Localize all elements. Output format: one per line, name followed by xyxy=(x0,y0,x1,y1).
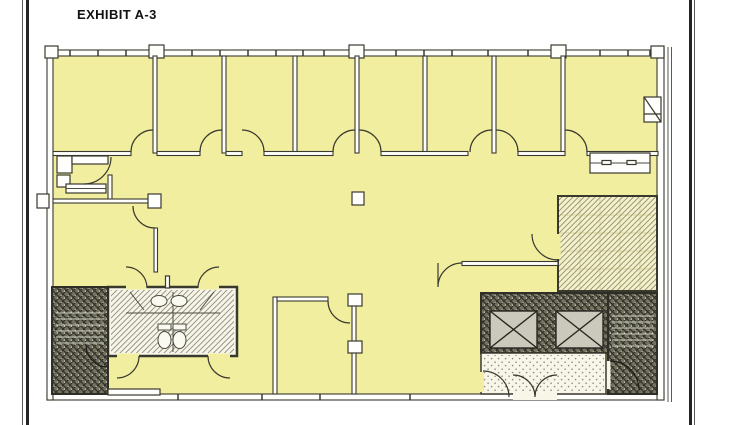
sink-fixture xyxy=(151,296,167,307)
office-partition xyxy=(293,56,297,153)
lobby-door-opening xyxy=(479,372,484,392)
corridor-wall xyxy=(264,152,333,156)
office-east-wall xyxy=(154,228,158,272)
office-partition xyxy=(492,56,496,153)
corridor-wall xyxy=(157,152,200,156)
shelf-unit xyxy=(72,156,108,164)
office-partition xyxy=(561,56,565,153)
storage-hatch xyxy=(559,197,656,290)
office-partition xyxy=(355,56,359,153)
counter-drawer xyxy=(627,161,636,165)
elevator-cab-1 xyxy=(490,311,537,348)
shelf-unit xyxy=(57,156,72,173)
storage-door-opening xyxy=(556,234,561,259)
corridor-wall xyxy=(53,152,131,156)
wall-end-column xyxy=(148,194,161,208)
restroom-door-opening xyxy=(198,285,219,290)
restroom-door-opening xyxy=(126,285,147,290)
document-page: EXHIBIT A-3 xyxy=(0,0,729,425)
stairwell-left-walls xyxy=(52,287,108,394)
toilet-bowl xyxy=(158,332,171,349)
elevator-core xyxy=(481,293,608,353)
office-north-wall xyxy=(277,297,328,301)
counter-drawer xyxy=(602,161,611,165)
corridor-wall xyxy=(381,152,468,156)
floor-plan xyxy=(0,0,729,425)
corridor-wall xyxy=(226,152,242,156)
freestanding-column xyxy=(352,192,364,205)
lobby-stipple xyxy=(483,355,604,392)
office-west-wall xyxy=(273,297,277,394)
column-marker xyxy=(45,46,58,58)
toilet-tank xyxy=(158,324,171,330)
office-north-wall xyxy=(53,199,149,203)
wall-column xyxy=(348,341,362,353)
lobby-vestibule xyxy=(479,353,606,400)
elevator-cab-2 xyxy=(556,311,603,348)
stairwell-right xyxy=(606,293,658,394)
column-marker xyxy=(651,46,664,58)
low-wall-segment xyxy=(108,389,160,395)
office-partition xyxy=(153,56,157,153)
toilet-tank xyxy=(173,324,186,330)
stairwell-right-walls xyxy=(608,293,657,394)
column-marker-left-wall xyxy=(37,194,49,208)
toilet-bowl xyxy=(173,332,186,349)
office-partition xyxy=(423,56,427,153)
closet-east-wall xyxy=(108,175,112,202)
floor-plan-drawing xyxy=(37,45,672,402)
entry-wall xyxy=(462,262,558,266)
building-edge-lines xyxy=(668,47,672,402)
corridor-wall xyxy=(518,152,565,156)
restroom-door-opening xyxy=(117,354,139,359)
office-partition xyxy=(222,56,226,153)
restroom-entry-stub-wall xyxy=(166,276,170,288)
wall-end-column xyxy=(348,294,362,306)
sink-fixture xyxy=(171,296,187,307)
restroom-door-opening xyxy=(208,354,230,359)
